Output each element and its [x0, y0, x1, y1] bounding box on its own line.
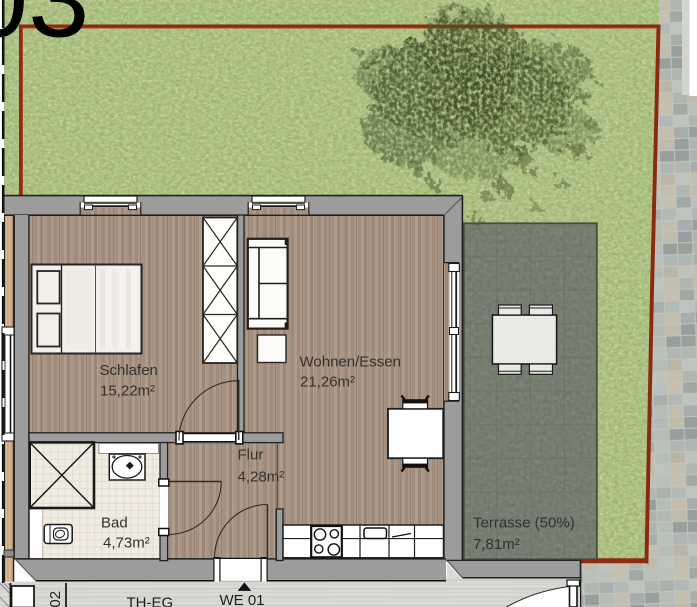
- svg-text:21,26m²: 21,26m²: [300, 373, 355, 390]
- svg-text:Schlafen: Schlafen: [100, 362, 158, 379]
- svg-text:15,22m²: 15,22m²: [100, 382, 155, 399]
- svg-text:03: 03: [0, 0, 89, 61]
- svg-text:02: 02: [47, 591, 64, 607]
- svg-text:4,28m²: 4,28m²: [238, 469, 285, 486]
- svg-text:4,73m²: 4,73m²: [103, 535, 150, 552]
- svg-text:Wohnen/Essen: Wohnen/Essen: [300, 354, 401, 371]
- svg-text:Bad: Bad: [101, 514, 128, 531]
- svg-text:TH-EG: TH-EG: [127, 595, 174, 607]
- svg-text:Flur: Flur: [238, 446, 264, 463]
- svg-text:Terrasse (50%): Terrasse (50%): [473, 515, 575, 532]
- svg-text:7,81m²: 7,81m²: [473, 536, 520, 553]
- svg-text:WE 01: WE 01: [220, 592, 265, 607]
